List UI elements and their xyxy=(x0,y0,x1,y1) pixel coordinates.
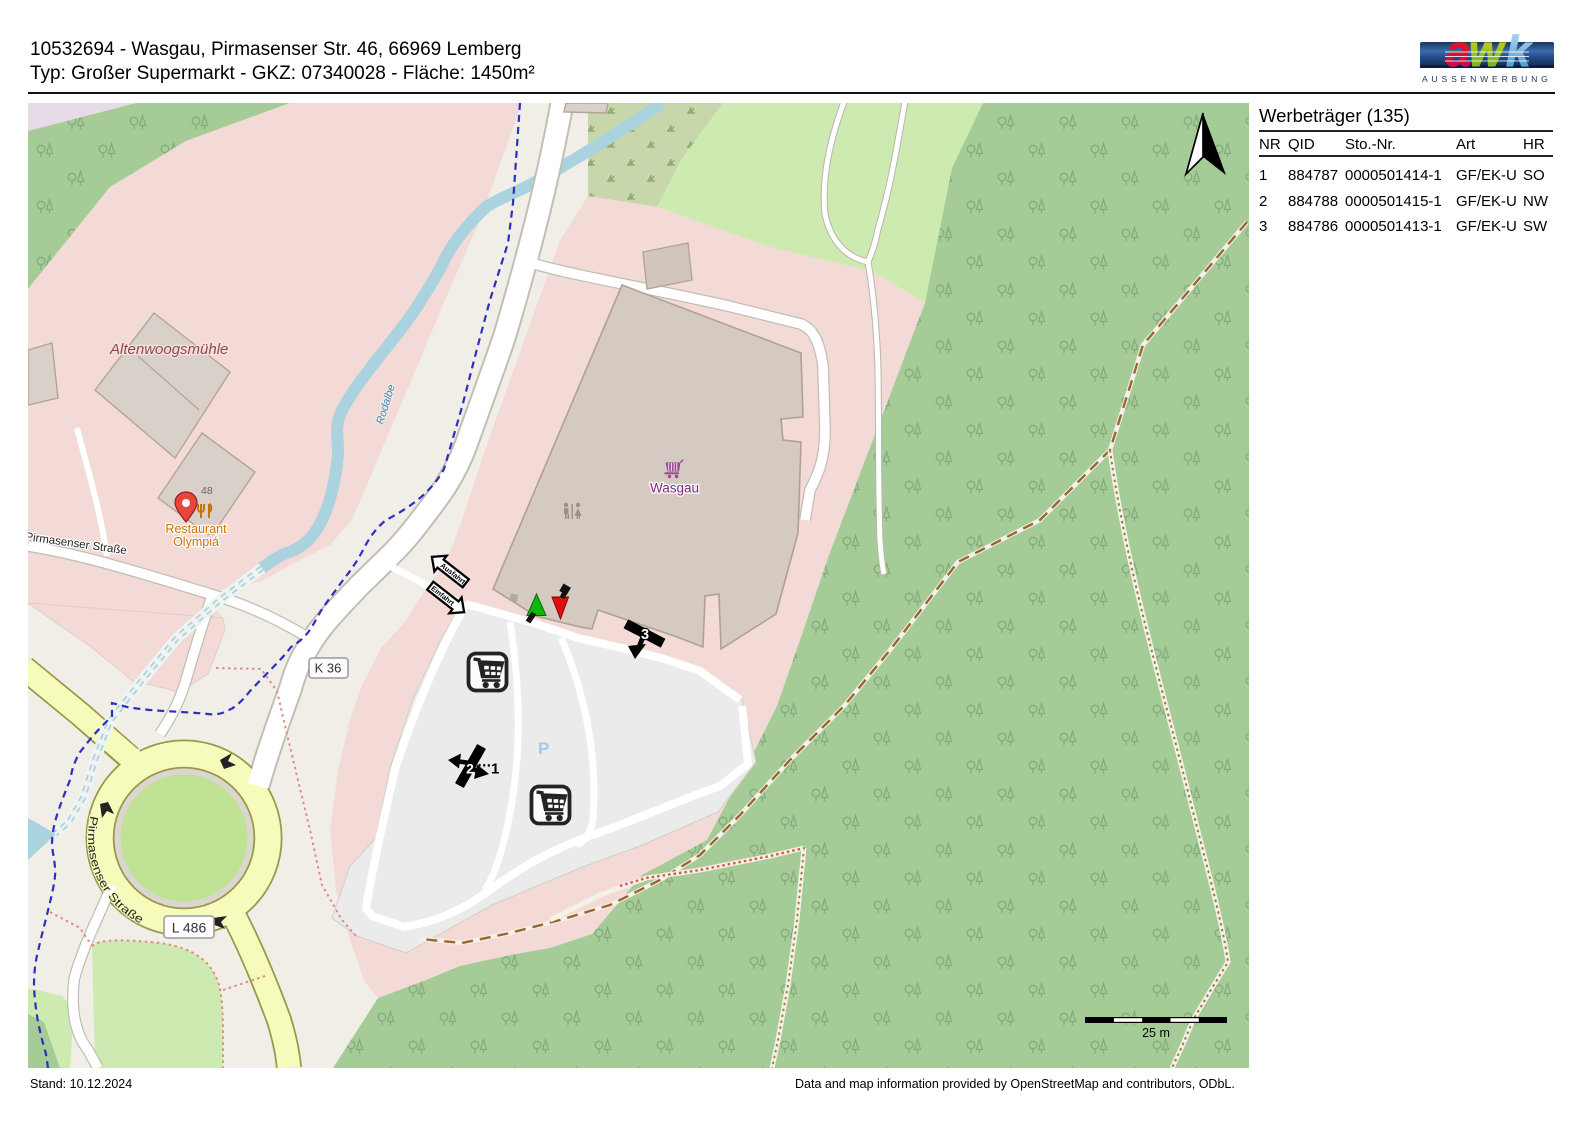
svg-text:48: 48 xyxy=(201,485,213,497)
svg-text:a: a xyxy=(1446,30,1470,76)
svg-text:1: 1 xyxy=(491,761,499,778)
svg-text:25 m: 25 m xyxy=(1142,1026,1170,1040)
svg-text:K 36: K 36 xyxy=(315,661,342,676)
svg-text:Wasgau: Wasgau xyxy=(650,481,699,496)
svg-text:L 486: L 486 xyxy=(172,920,207,936)
svg-text:Restaurant: Restaurant xyxy=(165,522,227,536)
svg-text:P: P xyxy=(538,739,549,758)
svg-text:Altenwoogsmühle: Altenwoogsmühle xyxy=(109,341,228,358)
svg-text:3: 3 xyxy=(641,627,649,643)
svg-text:2: 2 xyxy=(466,761,474,777)
svg-text:Olympiá: Olympiá xyxy=(173,535,219,549)
svg-text:AUSSENWERBUNG: AUSSENWERBUNG xyxy=(1422,74,1552,84)
